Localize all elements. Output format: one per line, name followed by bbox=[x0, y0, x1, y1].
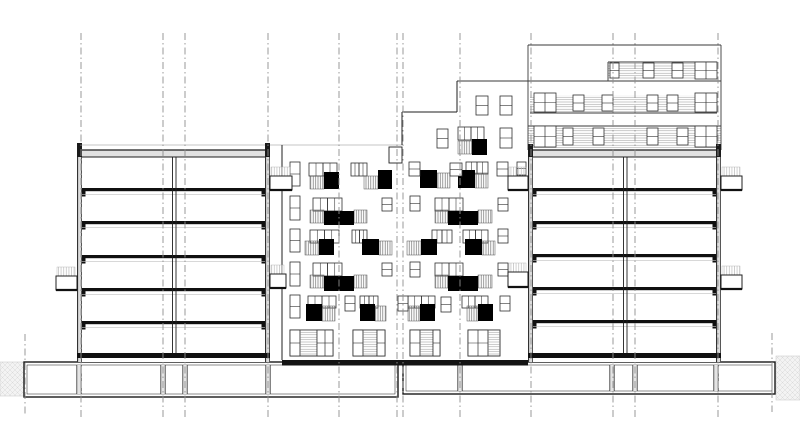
background-building bbox=[81, 45, 721, 150]
left-section-building bbox=[77, 143, 270, 362]
right-section-building bbox=[528, 144, 721, 362]
basement bbox=[24, 362, 775, 397]
drawing-canvas bbox=[0, 0, 800, 446]
building-section-elevation-drawing bbox=[0, 0, 800, 446]
